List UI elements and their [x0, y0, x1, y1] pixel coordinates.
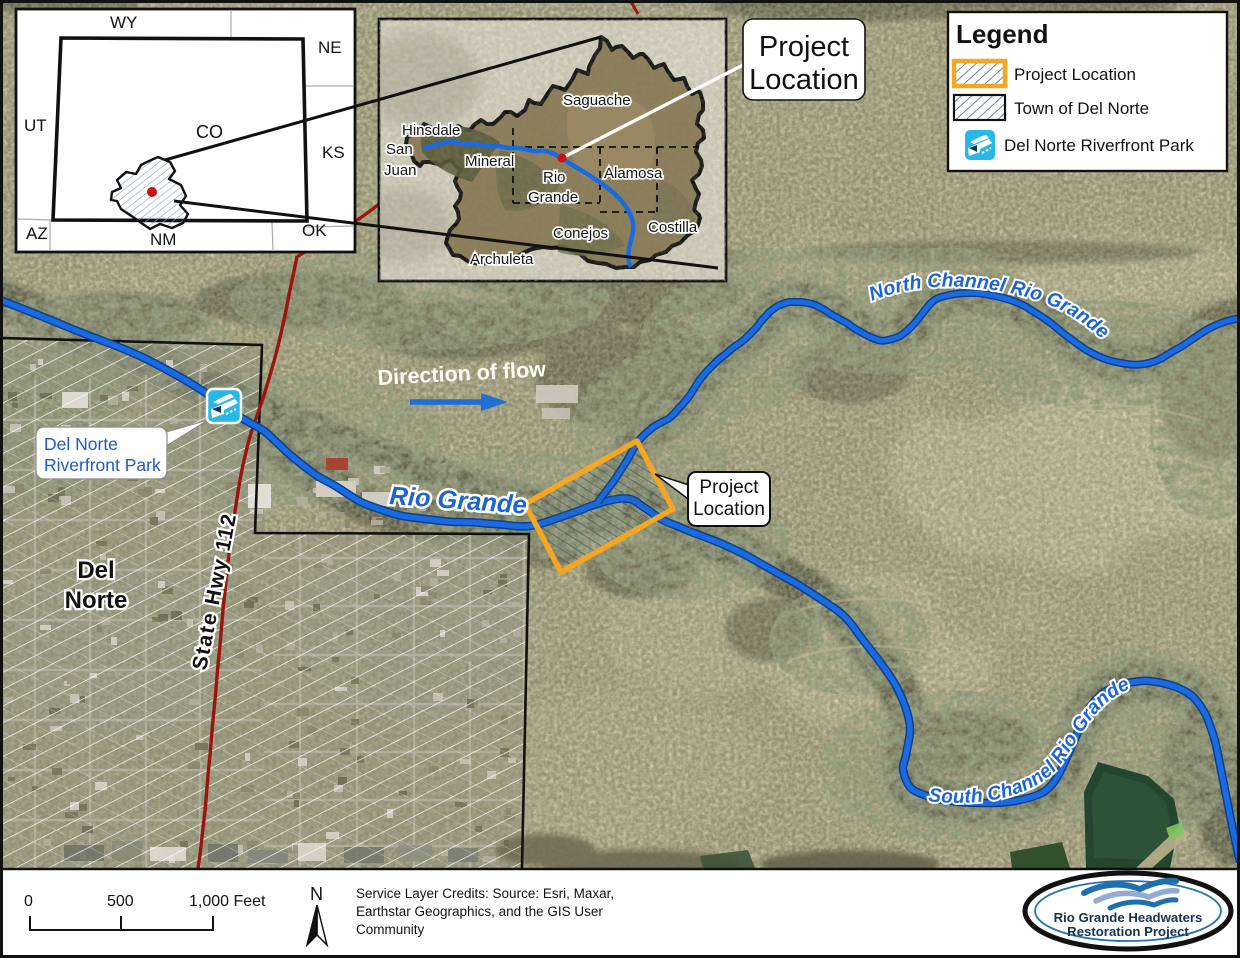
svg-text:Del: Del — [77, 557, 114, 584]
svg-text:Conejos: Conejos — [553, 225, 608, 242]
svg-text:Hinsdale: Hinsdale — [402, 122, 460, 139]
svg-text:Juan: Juan — [384, 162, 417, 179]
svg-text:Grande: Grande — [528, 189, 578, 206]
svg-text:CO: CO — [196, 122, 223, 142]
svg-text:UT: UT — [24, 116, 47, 135]
svg-text:Earthstar Geographics, and the: Earthstar Geographics, and the GIS User — [356, 904, 603, 919]
svg-text:Legend: Legend — [956, 19, 1048, 49]
svg-text:Archuleta: Archuleta — [470, 251, 534, 268]
svg-text:NM: NM — [150, 230, 176, 249]
svg-text:Rio: Rio — [543, 169, 566, 186]
svg-text:Community: Community — [356, 922, 425, 937]
svg-text:Project Location: Project Location — [1014, 65, 1136, 84]
svg-text:Del Norte Riverfront Park: Del Norte Riverfront Park — [1004, 136, 1194, 155]
svg-text:OK: OK — [302, 221, 327, 240]
svg-text:Norte: Norte — [65, 587, 128, 614]
svg-text:WY: WY — [110, 13, 137, 32]
svg-text:AZ: AZ — [26, 224, 48, 243]
svg-text:Location: Location — [693, 499, 765, 520]
svg-text:0: 0 — [24, 893, 33, 910]
svg-text:N: N — [310, 884, 323, 904]
svg-text:NE: NE — [318, 38, 342, 57]
svg-text:Project: Project — [699, 477, 759, 498]
svg-text:Costilla: Costilla — [648, 219, 698, 236]
svg-text:Del Norte: Del Norte — [44, 434, 118, 454]
svg-text:1,000 Feet: 1,000 Feet — [189, 893, 266, 910]
svg-text:Rio Grande Headwaters: Rio Grande Headwaters — [1054, 910, 1203, 925]
svg-text:KS: KS — [322, 143, 345, 162]
svg-text:Project: Project — [759, 31, 849, 63]
svg-text:Alamosa: Alamosa — [604, 165, 663, 182]
svg-text:San: San — [386, 141, 413, 158]
svg-text:Riverfront Park: Riverfront Park — [44, 455, 161, 475]
svg-text:Restoration Project: Restoration Project — [1067, 924, 1189, 939]
svg-text:Mineral: Mineral — [465, 153, 514, 170]
svg-text:500: 500 — [107, 893, 134, 910]
svg-text:Saguache: Saguache — [563, 92, 631, 109]
svg-text:Location: Location — [749, 64, 859, 96]
svg-text:Service Layer Credits: Source:: Service Layer Credits: Source: Esri, Max… — [356, 886, 614, 901]
svg-text:Town of Del Norte: Town of Del Norte — [1014, 99, 1149, 118]
